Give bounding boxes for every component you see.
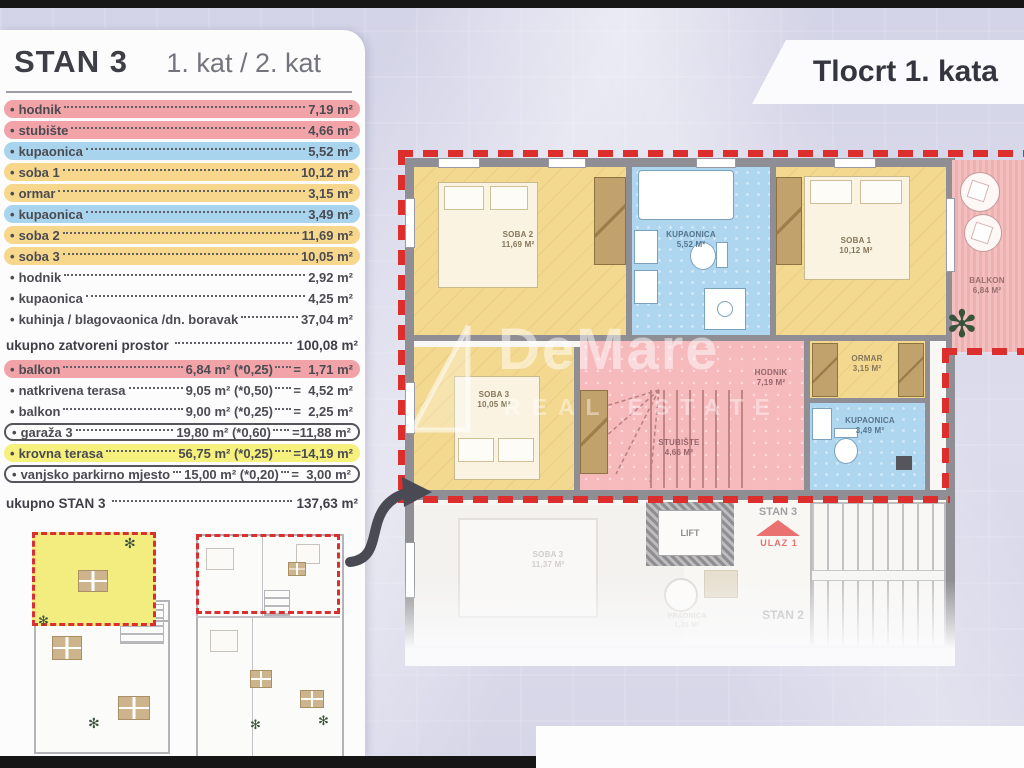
- bullet-icon: •: [10, 187, 15, 200]
- row-label: soba 1: [19, 165, 60, 180]
- plan-title: Tlocrt 1. kata: [813, 55, 998, 89]
- dot-leader: [273, 429, 289, 431]
- window: [696, 158, 736, 168]
- row-value: 10,05 m²: [301, 249, 353, 264]
- bullet-icon: •: [10, 271, 15, 284]
- unit-boundary-dash-left: [398, 150, 405, 503]
- row-result: = 2,25 m²: [293, 404, 353, 419]
- plant-icon: ✻: [88, 716, 100, 730]
- dot-leader: [129, 387, 183, 389]
- bullet-icon: •: [12, 426, 17, 439]
- row-value: 4,66 m²: [308, 123, 353, 138]
- row-label: natkrivena terasa: [19, 383, 126, 398]
- row-area-factor: 9,05 m² (*0,50): [186, 383, 273, 398]
- label-soba-3: SOBA 310,05 M²: [444, 390, 544, 411]
- row-label: soba 3: [19, 249, 60, 264]
- table-icon: [118, 696, 150, 720]
- extras-list: •balkon6,84 m² (*0,25)= 1,71 m²•natkrive…: [4, 360, 360, 486]
- label-ormar: ORMAR3,15 M²: [836, 354, 898, 375]
- wardrobe: [776, 177, 802, 265]
- unit-boundary-dash-bottom: [398, 496, 950, 503]
- row-value: 5,52 m²: [308, 144, 353, 159]
- dot-leader: [106, 450, 175, 452]
- bullet-icon: •: [10, 229, 15, 242]
- extra-row: •vanjsko parkirno mjesto15,00 m² (*0,20)…: [4, 465, 360, 483]
- room-row: •kupaonica4,25 m²: [4, 289, 360, 307]
- extra-row: •natkrivena terasa9,05 m² (*0,50)= 4,52 …: [4, 381, 360, 399]
- row-label: kupaonica: [19, 291, 83, 306]
- pillow: [490, 186, 528, 210]
- row-label: vanjsko parkirno mjesto: [21, 467, 171, 482]
- chair: [960, 172, 1000, 212]
- dot-leader: [63, 408, 182, 410]
- plant-icon: ✻: [318, 714, 329, 727]
- pillow: [860, 180, 902, 204]
- partition-line: [196, 616, 340, 618]
- bullet-icon: •: [10, 145, 15, 158]
- dot-leader: [63, 169, 298, 171]
- extra-row: •balkon9,00 m² (*0,25)= 2,25 m²: [4, 402, 360, 420]
- wardrobe: [898, 343, 924, 397]
- row-result: =11,88 m²: [291, 425, 351, 440]
- label-ulaz1: ULAZ 1: [754, 538, 804, 548]
- plan-title-band: Tlocrt 1. kata: [752, 40, 1024, 104]
- lift: LIFT: [658, 510, 722, 556]
- bullet-icon: •: [10, 166, 15, 179]
- wall: [804, 341, 810, 490]
- dot-leader: [275, 387, 291, 389]
- extra-row: •krovna terasa56,75 m² (*0,25)=14,19 m²: [4, 444, 360, 462]
- dot-leader: [63, 366, 182, 368]
- table-icon: [250, 670, 272, 688]
- label-kupaonica-small: KUPAONICA3,49 M²: [828, 416, 912, 437]
- bed-icon: [210, 630, 238, 652]
- bullet-icon: •: [10, 405, 15, 418]
- dot-leader: [173, 471, 181, 473]
- table-icon: [52, 636, 82, 660]
- wall: [810, 398, 925, 403]
- room-row: •kuhinja / blagovaonica /dn. boravak37,0…: [4, 310, 360, 328]
- row-value: 7,19 m²: [308, 102, 353, 117]
- room-row: •soba 211,69 m²: [4, 226, 360, 244]
- plant-icon: ✻: [250, 718, 261, 731]
- row-value: 2,92 m²: [308, 270, 353, 285]
- dot-leader: [175, 342, 293, 344]
- floor-plan: SOBA 211,69 M² KUPAONICA5,52 M² SOBA 110…: [398, 150, 1024, 666]
- bullet-icon: •: [10, 292, 15, 305]
- bullet-icon: •: [10, 363, 15, 376]
- label-kupaonica-top: KUPAONICA5,52 M²: [646, 230, 736, 251]
- panel-header: STAN 3 1. kat / 2. kat: [14, 44, 354, 88]
- window: [405, 198, 415, 248]
- subtotal-value: 100,08 m²: [296, 338, 358, 353]
- bullet-icon: •: [10, 447, 15, 460]
- dot-leader: [275, 366, 291, 368]
- row-value: 4,25 m²: [308, 291, 353, 306]
- row-label: kupaonica: [19, 207, 83, 222]
- balcony-door: [946, 198, 955, 272]
- dot-leader: [241, 316, 298, 318]
- balcony: ✻: [952, 160, 1024, 352]
- label-lower-soba: SOBA 311,37 M²: [493, 550, 603, 571]
- row-label: balkon: [19, 362, 61, 377]
- plant-icon: ✻: [124, 536, 136, 550]
- wall: [925, 341, 930, 490]
- row-value: 3,15 m²: [308, 186, 353, 201]
- bottom-white-corner: [536, 726, 1024, 768]
- row-area-factor: 15,00 m² (*0,20): [184, 467, 279, 482]
- bullet-icon: •: [10, 313, 15, 326]
- dot-leader: [64, 274, 305, 276]
- floor-subtitle: 1. kat / 2. kat: [166, 48, 321, 78]
- entrance-arrow-icon: [756, 520, 800, 536]
- row-area-factor: 6,84 m² (*0,25): [186, 362, 273, 377]
- apartment-title: STAN 3: [14, 44, 128, 79]
- row-label: kuhinja / blagovaonica /dn. boravak: [19, 312, 239, 327]
- dot-leader: [275, 408, 291, 410]
- summary-panel: STAN 3 1. kat / 2. kat •hodnik7,19 m²•st…: [0, 30, 365, 756]
- bullet-icon: •: [12, 468, 17, 481]
- row-area-factor: 56,75 m² (*0,25): [178, 446, 273, 461]
- bathtub: [638, 170, 734, 220]
- dot-leader: [76, 429, 174, 431]
- dot-leader: [86, 148, 305, 150]
- row-area-factor: 19,80 m² (*0,60): [176, 425, 271, 440]
- window: [834, 158, 876, 168]
- total-row: ukupno STAN 3 137,63 m²: [6, 493, 358, 513]
- row-label: krovna terasa: [19, 446, 104, 461]
- total-label: ukupno STAN 3: [6, 496, 106, 511]
- extra-row: •garaža 319,80 m² (*0,60)=11,88 m²: [4, 423, 360, 441]
- table-icon: [78, 570, 108, 592]
- bullet-icon: •: [10, 103, 15, 116]
- label-stubiste: STUBIŠTE4,66 M²: [642, 438, 716, 459]
- label-soba-1: SOBA 110,12 M²: [806, 236, 906, 257]
- window: [438, 158, 480, 168]
- room-row: •kupaonica3,49 m²: [4, 205, 360, 223]
- page: STAN 3 1. kat / 2. kat •hodnik7,19 m²•st…: [0, 0, 1024, 768]
- row-result: = 4,52 m²: [293, 383, 353, 398]
- wardrobe: [594, 177, 626, 265]
- subtotal-label: ukupno zatvoreni prostor: [6, 338, 169, 353]
- dot-leader: [86, 211, 305, 213]
- row-label: stubište: [19, 123, 69, 138]
- header-rule: [6, 91, 352, 93]
- sink: [634, 270, 658, 304]
- stan3-highlight-dashes: [196, 534, 340, 614]
- row-label: hodnik: [19, 270, 62, 285]
- wardrobe: [812, 343, 838, 397]
- subtotal-row: ukupno zatvoreni prostor 100,08 m²: [6, 335, 358, 355]
- pillow: [810, 180, 852, 204]
- unit-boundary-dash-top: [398, 150, 1024, 157]
- dot-leader: [63, 253, 298, 255]
- label-stan3: STAN 3: [748, 506, 808, 518]
- extra-row: •balkon6,84 m² (*0,25)= 1,71 m²: [4, 360, 360, 378]
- row-label: soba 2: [19, 228, 60, 243]
- top-black-bar: [0, 0, 1024, 8]
- room-row: •soba 310,05 m²: [4, 247, 360, 265]
- row-value: 11,69 m²: [302, 228, 353, 243]
- row-result: =14,19 m²: [293, 446, 353, 461]
- row-value: 37,04 m²: [301, 312, 353, 327]
- fade-overlay: [405, 580, 955, 666]
- dot-leader: [112, 500, 293, 502]
- room-row: •hodnik2,92 m²: [4, 268, 360, 286]
- row-result: = 1,71 m²: [293, 362, 353, 377]
- pillow: [444, 186, 484, 210]
- bullet-icon: •: [10, 250, 15, 263]
- shower-drain-icon: [717, 301, 733, 317]
- bullet-icon: •: [10, 384, 15, 397]
- unit-boundary-dash-right: [942, 348, 949, 496]
- dot-leader: [64, 106, 305, 108]
- room-list: •hodnik7,19 m²•stubište4,66 m²•kupaonica…: [4, 100, 360, 331]
- row-value: 10,12 m²: [301, 165, 353, 180]
- dot-leader: [58, 190, 305, 192]
- dot-leader: [71, 127, 305, 129]
- room-row: •stubište4,66 m²: [4, 121, 360, 139]
- row-label: balkon: [19, 404, 61, 419]
- row-label: hodnik: [19, 102, 62, 117]
- plant-icon: ✻: [946, 306, 978, 344]
- washing-machine-icon: [896, 456, 912, 470]
- wall: [414, 335, 946, 341]
- wall: [626, 167, 632, 335]
- room-row: •hodnik7,19 m²: [4, 100, 360, 118]
- row-label: kupaonica: [19, 144, 83, 159]
- row-label: garaža 3: [21, 425, 73, 440]
- row-value: 3,49 m²: [308, 207, 353, 222]
- label-soba-2: SOBA 211,69 M²: [468, 230, 568, 251]
- pointer-arrow-icon: [330, 466, 434, 572]
- door-jamb: [580, 390, 608, 474]
- dot-leader: [275, 450, 291, 452]
- label-balkon: BALKON6,84 M²: [950, 276, 1024, 297]
- plant-icon: ✻: [38, 614, 49, 627]
- unit-boundary-dash-balcony: [942, 348, 1024, 355]
- room-row: •ormar3,15 m²: [4, 184, 360, 202]
- table-icon: [300, 690, 324, 708]
- room-row: •soba 110,12 m²: [4, 163, 360, 181]
- chair: [964, 214, 1002, 252]
- bottom-black-bar: [0, 756, 536, 768]
- room-row: •kupaonica5,52 m²: [4, 142, 360, 160]
- bullet-icon: •: [10, 208, 15, 221]
- window: [548, 158, 586, 168]
- window: [405, 382, 415, 434]
- pillow: [458, 438, 494, 462]
- label-hodnik: HODNIK7,19 M²: [734, 368, 808, 389]
- bullet-icon: •: [10, 124, 15, 137]
- pillow: [498, 438, 534, 462]
- dot-leader: [86, 295, 305, 297]
- toilet-icon: [834, 438, 858, 464]
- dot-leader: [281, 471, 289, 473]
- dot-leader: [63, 232, 299, 234]
- row-label: ormar: [19, 186, 56, 201]
- row-area-factor: 9,00 m² (*0,25): [186, 404, 273, 419]
